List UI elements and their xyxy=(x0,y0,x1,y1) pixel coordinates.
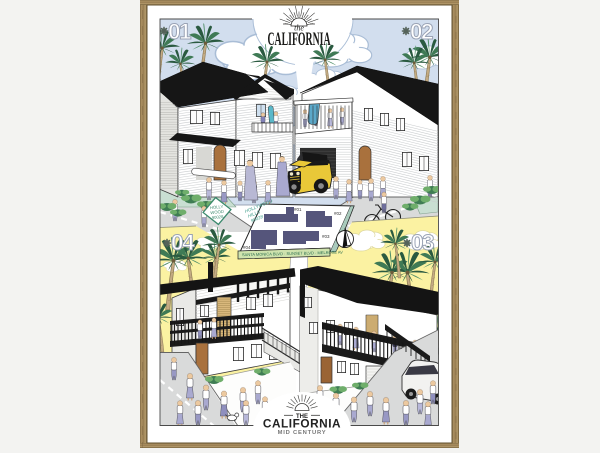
svg-text:03: 03 xyxy=(411,230,434,255)
svg-text:#04: #04 xyxy=(243,245,251,250)
svg-text:CALIFORNIA: CALIFORNIA xyxy=(263,417,341,431)
svg-text:#03: #03 xyxy=(322,234,330,239)
svg-text:MID CENTURY: MID CENTURY xyxy=(278,430,327,436)
svg-text:01: 01 xyxy=(168,19,191,44)
svg-text:04: 04 xyxy=(171,230,195,255)
svg-text:CALIFORNIA: CALIFORNIA xyxy=(268,30,331,50)
svg-text:02: 02 xyxy=(410,19,433,44)
svg-text:#01: #01 xyxy=(294,207,302,212)
svg-text:#02: #02 xyxy=(334,211,342,216)
